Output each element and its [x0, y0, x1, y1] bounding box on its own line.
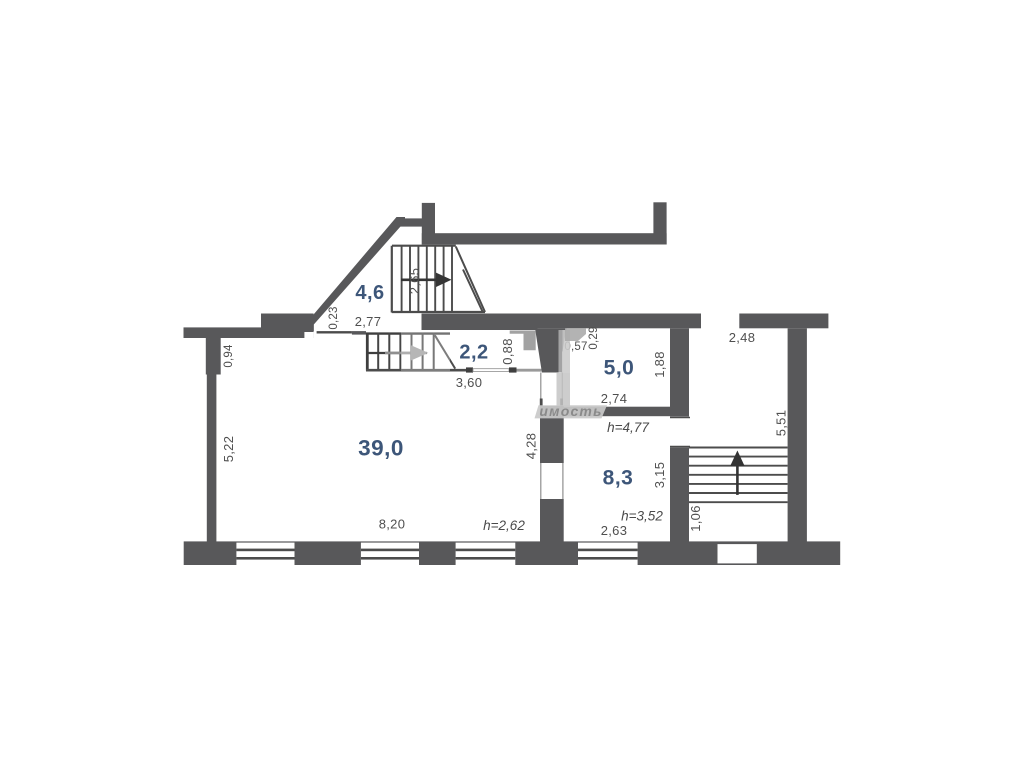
svg-text:0,29: 0,29: [588, 326, 600, 349]
svg-text:3,60: 3,60: [456, 375, 483, 390]
svg-text:h=3,52: h=3,52: [621, 509, 663, 524]
svg-text:4,6: 4,6: [355, 282, 384, 304]
svg-text:2,48: 2,48: [729, 330, 756, 345]
svg-text:2,74: 2,74: [601, 391, 628, 406]
svg-text:0,23: 0,23: [328, 306, 340, 329]
svg-text:3,15: 3,15: [652, 462, 667, 489]
svg-text:2,63: 2,63: [601, 523, 628, 538]
svg-text:2,77: 2,77: [355, 314, 382, 329]
svg-text:39,0: 39,0: [358, 436, 404, 461]
svg-text:0,94: 0,94: [223, 344, 235, 368]
svg-text:2,65: 2,65: [407, 268, 422, 295]
svg-text:5,51: 5,51: [774, 410, 789, 437]
svg-text:4,28: 4,28: [524, 433, 539, 460]
svg-text:8,3: 8,3: [603, 467, 634, 490]
svg-text:5,0: 5,0: [604, 357, 635, 380]
svg-text:h=2,62: h=2,62: [483, 518, 525, 533]
svg-text:1,88: 1,88: [652, 351, 667, 378]
svg-text:8,20: 8,20: [379, 517, 406, 532]
svg-text:имость: имость: [539, 403, 602, 419]
svg-text:1,06: 1,06: [688, 505, 703, 532]
svg-text:0,88: 0,88: [500, 338, 515, 365]
svg-text:5,22: 5,22: [221, 436, 236, 463]
svg-text:h=4,77: h=4,77: [607, 420, 649, 435]
svg-text:2,2: 2,2: [459, 342, 488, 364]
